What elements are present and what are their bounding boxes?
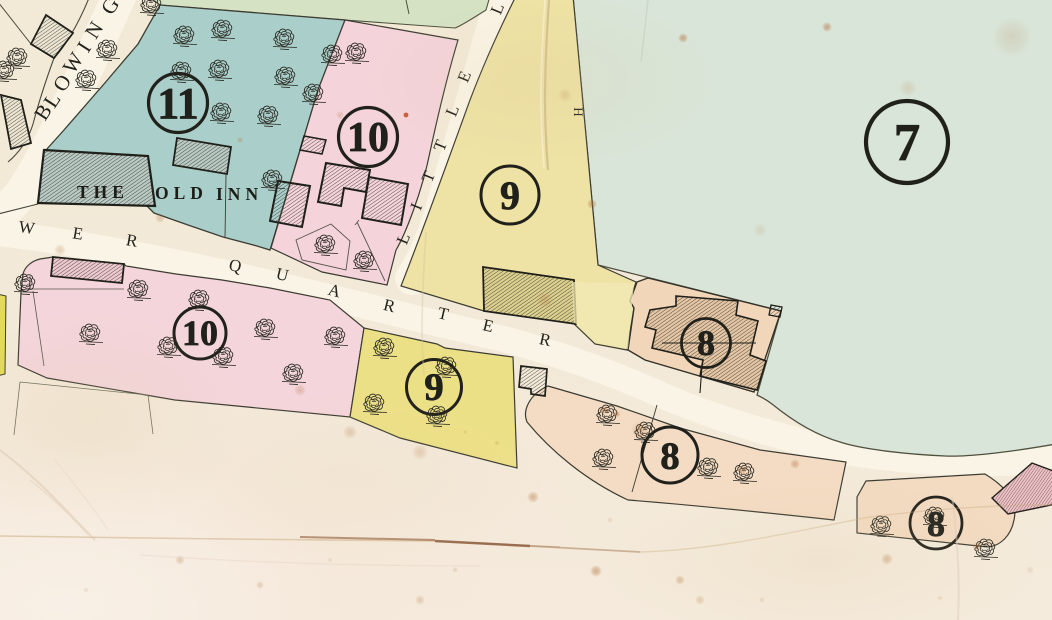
svg-text:8: 8 xyxy=(660,435,680,478)
svg-text:7: 7 xyxy=(894,114,921,172)
svg-text:THE: THE xyxy=(77,182,129,202)
svg-text:11: 11 xyxy=(157,79,199,128)
svg-text:INN: INN xyxy=(216,184,263,204)
svg-text:8: 8 xyxy=(697,323,715,363)
svg-text:OLD: OLD xyxy=(155,183,208,203)
svg-text:9: 9 xyxy=(500,173,520,218)
